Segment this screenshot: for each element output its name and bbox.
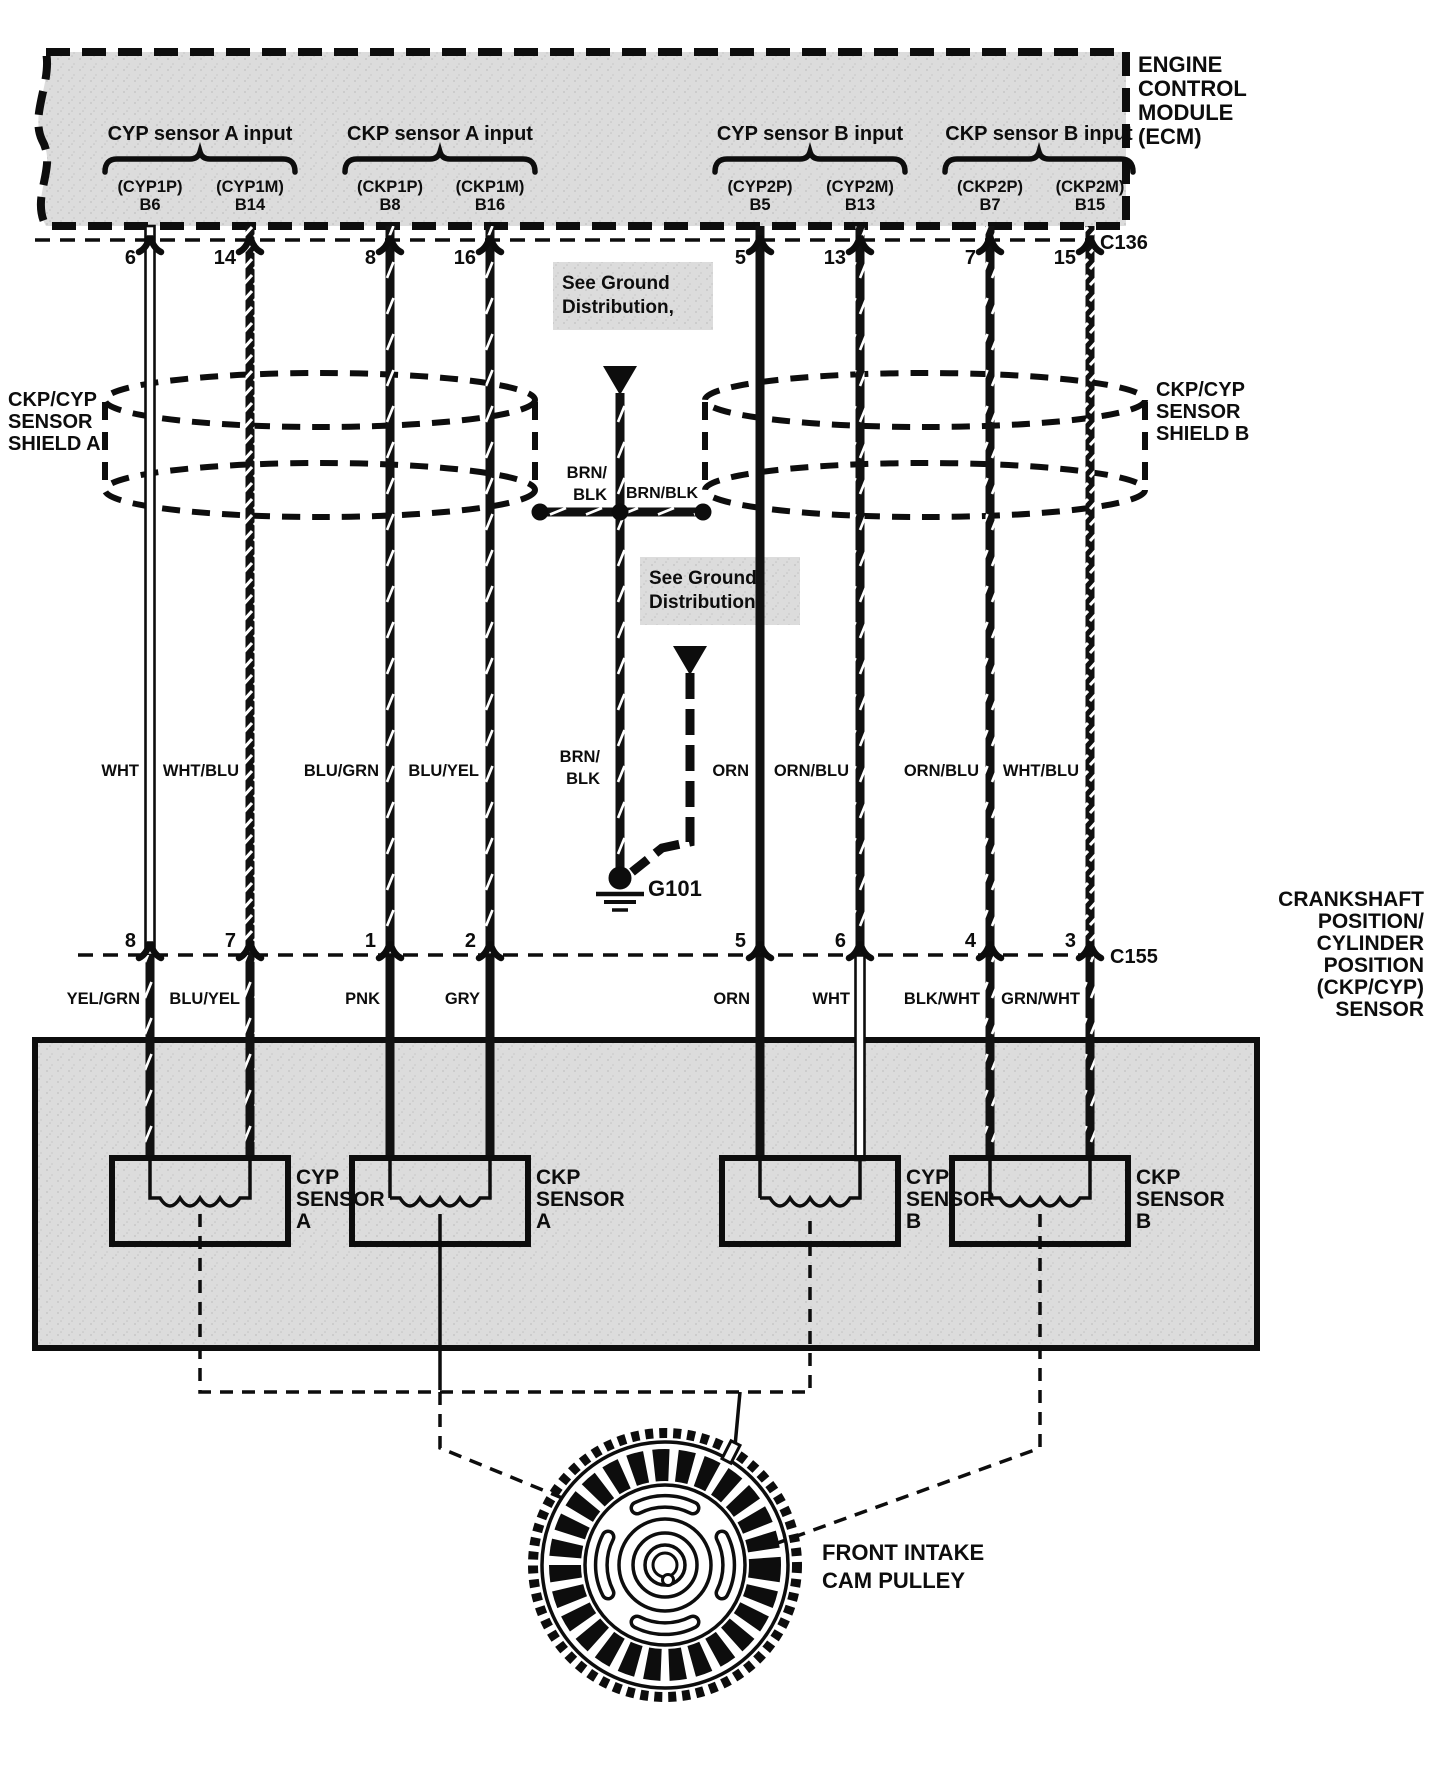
junction-dot (532, 504, 549, 521)
wire-color-bottom: BLK/WHT (904, 990, 980, 1008)
ecm-label-line: MODULE (1138, 100, 1233, 125)
ecm-pin-id: B7 (979, 196, 1000, 214)
wire-color-bottom: PNK (345, 990, 380, 1008)
pin-number-bottom: 8 (125, 930, 136, 952)
wire-2-upper (246, 226, 255, 955)
wire-color-mid: ORN (712, 762, 749, 780)
sensor-label-line: CYP (906, 1166, 949, 1189)
ecm-pin-name: (CYP1M) (216, 178, 284, 196)
pin-number-top: 5 (735, 247, 746, 269)
pin-number-top: 6 (125, 247, 136, 269)
shield-a-line: SHIELD A (8, 433, 101, 455)
ckp-label-line: POSITION (1324, 954, 1424, 977)
shield-b-line: CKP/CYP (1156, 379, 1245, 401)
sensor-label-line: CKP (536, 1166, 580, 1189)
ecm-pin-name: (CKP1P) (357, 178, 423, 196)
pulley-label-line1: FRONT INTAKE (822, 1540, 984, 1565)
shield-a-line: CKP/CYP (8, 389, 97, 411)
ecm-pin-id: B6 (139, 196, 160, 214)
shield-b-label: CKP/CYP SENSOR SHIELD B (1156, 379, 1249, 445)
wire-3-upper (386, 226, 395, 955)
ecm-pin-name: (CYP2M) (826, 178, 894, 196)
sensor-label-line: A (536, 1210, 551, 1233)
wire-color-mid: ORN/BLU (904, 762, 979, 780)
pin-number-bottom: 7 (225, 930, 236, 952)
pin-number-bottom: 4 (965, 930, 977, 952)
pin-number-top: 15 (1054, 247, 1076, 269)
ckp-label-line: CRANKSHAFT (1278, 888, 1424, 911)
wire-5-lower (756, 955, 765, 1160)
ecm-pin-id: B14 (235, 196, 266, 214)
pin-number-bottom: 6 (835, 930, 846, 952)
sensor-label-line: A (296, 1210, 311, 1233)
wire-color-bottom: YEL/GRN (67, 990, 140, 1008)
ckp-label-line: CYLINDER (1317, 932, 1424, 955)
sensor-label-line: CKP (1136, 1166, 1180, 1189)
wire-1-upper (146, 226, 155, 955)
ground-note-2: See Ground Distribution, (640, 557, 800, 625)
wire-color-brnblk-bus: BRN/BLK (626, 485, 698, 502)
wire-6-lower (856, 955, 865, 1160)
ecm-label-line: (ECM) (1138, 124, 1202, 149)
ckp-label-line: POSITION/ (1318, 910, 1424, 933)
group-label-ckp-b: CKP sensor B input (945, 123, 1133, 145)
shield-b-line: SENSOR (1156, 401, 1241, 423)
junction-dot (695, 504, 712, 521)
group-label-ckp-a: CKP sensor A input (347, 123, 533, 145)
shield-a-line: SENSOR (8, 411, 93, 433)
pin-number-bottom: 5 (735, 930, 746, 952)
wiring-diagram-page: ENGINE CONTROL MODULE (ECM) CYP sensor A… (0, 0, 1430, 1761)
sensor-label-line: SENSOR (1136, 1188, 1225, 1211)
g101-label: G101 (648, 876, 702, 901)
wire-3-lower (386, 955, 395, 1160)
wire-color-brnblk-mid: BLK (566, 770, 600, 788)
wire-color-bottom: ORN (713, 990, 750, 1008)
group-label-cyp-a: CYP sensor A input (108, 123, 293, 145)
wire-color-bottom: WHT (812, 990, 850, 1008)
wire-7-lower (986, 955, 995, 1160)
sensor-assembly-box (35, 1040, 1257, 1348)
wire-color-mid: WHT (101, 762, 139, 780)
wire-6-upper (856, 226, 865, 955)
ecm-label-line: CONTROL (1138, 76, 1247, 101)
pin-number-top: 8 (365, 247, 376, 269)
shield-a-label: CKP/CYP SENSOR SHIELD A (8, 389, 101, 455)
wire-color-brnblk-upper: BRN/ (567, 464, 608, 482)
ecm-pin-name: (CKP1M) (456, 178, 525, 196)
wire-color-bottom: GRY (445, 990, 480, 1008)
wire-color-bottom: GRN/WHT (1001, 990, 1080, 1008)
ecm-pin-id: B15 (1075, 196, 1105, 214)
wire-8-upper (1086, 226, 1095, 955)
shield-b-line: SHIELD B (1156, 423, 1249, 445)
pin-number-top: 14 (214, 247, 237, 269)
wire-8-lower (1086, 955, 1095, 1160)
connector-c136-label: C136 (1100, 232, 1148, 254)
wire-color-brnblk-upper: BLK (573, 486, 607, 504)
wiring-diagram: ENGINE CONTROL MODULE (ECM) CYP sensor A… (0, 0, 1430, 1761)
connector-c155-label: C155 (1110, 946, 1158, 968)
wire-4-lower (486, 955, 495, 1160)
ecm-pin-name: (CKP2M) (1056, 178, 1125, 196)
sensor-label-line: SENSOR (536, 1188, 625, 1211)
pin-number-top: 7 (965, 247, 976, 269)
wire-color-bottom: BLU/YEL (169, 990, 240, 1008)
ecm-pin-name: (CKP2P) (957, 178, 1023, 196)
wire-5-upper (756, 226, 765, 955)
pin-number-bottom: 3 (1065, 930, 1076, 952)
wire-4-upper (486, 226, 495, 955)
wire-color-mid: WHT/BLU (163, 762, 239, 780)
wire-color-mid: BLU/YEL (408, 762, 479, 780)
pin-number-bottom: 1 (365, 930, 376, 952)
sensor-label-line: SENSOR (296, 1188, 385, 1211)
ecm-label-line: ENGINE (1138, 52, 1222, 77)
ground-note-line: Distribution, (649, 592, 761, 613)
pin-number-top: 13 (824, 247, 846, 269)
ckp-label-line: (CKP/CYP) (1317, 976, 1424, 999)
junction-dot (612, 504, 629, 521)
ground-note-line: See Ground (562, 273, 670, 294)
ckp-label-line: SENSOR (1335, 998, 1424, 1021)
sensor-label-line: CYP (296, 1166, 339, 1189)
wire-7-upper (986, 226, 995, 955)
ecm-pin-name: (CYP1P) (117, 178, 182, 196)
sensor-label-line: SENSOR (906, 1188, 995, 1211)
ground-note-line: Distribution, (562, 297, 674, 318)
ecm-pin-name: (CYP2P) (727, 178, 792, 196)
wire-color-mid: WHT/BLU (1003, 762, 1079, 780)
ecm-pin-id: B13 (845, 196, 875, 214)
ecm-pin-id: B5 (749, 196, 770, 214)
sensor-label-line: B (1136, 1210, 1151, 1233)
sensor-label-line: B (906, 1210, 921, 1233)
pin-number-bottom: 2 (465, 930, 476, 952)
wire-color-brnblk-mid: BRN/ (560, 748, 601, 766)
wire-2-lower (246, 955, 255, 1160)
group-label-cyp-b: CYP sensor B input (717, 123, 904, 145)
ecm-pin-id: B16 (475, 196, 505, 214)
pulley-label-line2: CAM PULLEY (822, 1568, 965, 1593)
ground-note-1: See Ground Distribution, (553, 262, 713, 330)
pulley-keyway (663, 1575, 674, 1586)
ecm-pin-id: B8 (379, 196, 400, 214)
ground-note-line: See Ground (649, 568, 757, 589)
pin-number-top: 16 (454, 247, 476, 269)
wire-color-mid: ORN/BLU (774, 762, 849, 780)
wire-color-mid: BLU/GRN (304, 762, 379, 780)
ground-wire-brnblk (616, 393, 625, 868)
wire-1-lower (146, 955, 155, 1160)
